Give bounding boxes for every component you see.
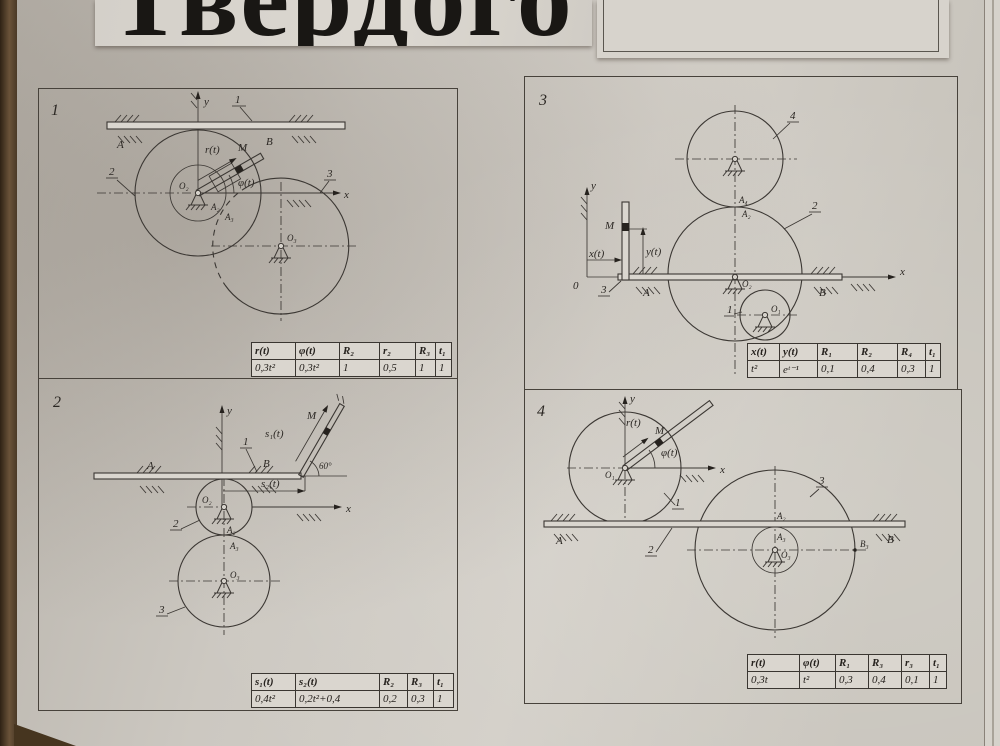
support-hatch-a-top xyxy=(633,267,657,274)
col-header: R₁ xyxy=(818,344,858,361)
body-3-label: 3 xyxy=(158,604,165,616)
a2-label: A₂ xyxy=(226,525,236,535)
a3-label: A₃ xyxy=(229,541,239,551)
photo-of-problem-sheet: Твердого 1 xyxy=(0,0,1000,746)
point-a-label: A xyxy=(642,287,650,299)
body-2-leader xyxy=(784,214,812,229)
panel-number: 3 xyxy=(538,92,547,109)
body-4-leader xyxy=(773,123,790,139)
support-hatch-b-bottom xyxy=(814,287,838,294)
support-hatch-b-top xyxy=(289,115,313,122)
a3-label: A₃ xyxy=(224,212,234,222)
problem-panel-4: 4 y x r(t) M φ(t) xyxy=(524,389,962,704)
mechanism-diagram-1: 1 y x A B xyxy=(39,89,454,375)
body-2-leader xyxy=(656,528,672,552)
xt-label: x(t) xyxy=(588,248,605,260)
col-value: 1 xyxy=(930,672,947,689)
o2-label: O₂ xyxy=(202,495,212,505)
panel-number: 2 xyxy=(53,394,61,411)
col-header: R₄ xyxy=(898,344,926,361)
x-axis-arrow xyxy=(333,191,341,196)
col-value: eᵗ⁻¹ xyxy=(780,361,818,378)
col-value: 0,1 xyxy=(902,672,930,689)
point-b3-dot xyxy=(853,548,857,552)
body-3-leader xyxy=(609,281,621,292)
col-header: r₂ xyxy=(380,343,416,360)
col-value: 0,2 xyxy=(380,691,408,708)
col-value: 0,5 xyxy=(380,360,416,377)
col-value: 1 xyxy=(436,360,452,377)
header-row: s₁(t) s₂(t) R₂ R₃ t₁ xyxy=(252,674,454,691)
x-axis-label: x xyxy=(343,189,349,201)
parameters-table-1: r(t) φ(t) R₂ r₂ R₃ t₁ 0,3t² 0,3t² 1 0,5 … xyxy=(251,342,452,377)
col-value: 0,4 xyxy=(869,672,902,689)
l-rod-post xyxy=(622,202,629,280)
col-header: φ(t) xyxy=(800,655,836,672)
rotating-rod xyxy=(191,144,266,200)
o1-label: O₁ xyxy=(771,304,781,314)
ground-hatch-x-axis xyxy=(287,200,311,207)
point-a-label: A xyxy=(146,460,154,472)
point-m-label: M xyxy=(604,220,615,232)
mechanism-diagram-3: 3 4 A₄ A₂ 2 y 0 xyxy=(525,77,954,386)
yt-label: y(t) xyxy=(645,246,662,258)
body-2-leader xyxy=(181,520,200,529)
col-header: s₂(t) xyxy=(296,674,380,691)
col-header: φ(t) xyxy=(296,343,340,360)
support-hatch-b-top xyxy=(811,267,835,274)
col-value: 1 xyxy=(416,360,436,377)
wall-hatch-y-axis xyxy=(581,197,587,220)
y-axis-arrow xyxy=(196,91,201,99)
col-value: 0,3t xyxy=(748,672,800,689)
body-1-leader xyxy=(246,449,257,472)
col-value: 1 xyxy=(340,360,380,377)
col-header: R₂ xyxy=(380,674,408,691)
panel-number: 1 xyxy=(51,102,59,119)
a2-label: A₂ xyxy=(210,202,220,212)
col-header: x(t) xyxy=(748,344,780,361)
col-value: 0,3 xyxy=(898,361,926,378)
support-hatch-b-bottom xyxy=(292,136,316,143)
col-header: t₁ xyxy=(434,674,454,691)
y-axis-arrow xyxy=(220,405,225,413)
support-hatch-a-bottom xyxy=(140,486,164,493)
phi-label: φ(t) xyxy=(661,447,678,459)
heading-text: Твердого xyxy=(109,0,574,46)
x-axis-arrow xyxy=(708,466,716,471)
col-header: R₁ xyxy=(836,655,869,672)
col-value: 1 xyxy=(434,691,454,708)
o2-label: O₂ xyxy=(742,279,752,289)
col-header: t₁ xyxy=(930,655,947,672)
body-2-label: 2 xyxy=(648,544,654,556)
body-3-leader xyxy=(810,489,819,497)
ground-hatch-x-axis xyxy=(680,475,704,482)
support-hatch-a-top xyxy=(115,115,139,122)
col-value: 0,3 xyxy=(408,691,434,708)
col-value: 0,3t² xyxy=(252,360,296,377)
body-4-label: 4 xyxy=(790,110,796,122)
a4-label: A₄ xyxy=(738,195,748,205)
col-header: R₃ xyxy=(869,655,902,672)
col-header: t₁ xyxy=(436,343,452,360)
point-b-label: B xyxy=(266,136,273,148)
value-row: t² eᵗ⁻¹ 0,1 0,4 0,3 1 xyxy=(748,361,941,378)
body-1-label: 1 xyxy=(727,304,733,316)
point-a-label: A xyxy=(555,535,563,547)
wall-hatch-y-axis xyxy=(216,427,222,450)
xt-arrow xyxy=(615,258,623,263)
support-hatch-b-top xyxy=(873,514,897,521)
y-axis-arrow xyxy=(623,396,628,404)
wall-hatch-y-axis xyxy=(619,402,625,425)
col-header: R₂ xyxy=(340,343,380,360)
support-hatch-a-top xyxy=(551,514,575,521)
point-m-slider xyxy=(622,223,629,231)
s2-label: s₂(t) xyxy=(261,478,280,490)
a2-label: A₂ xyxy=(741,209,751,219)
o3-label: O₃ xyxy=(230,570,240,580)
col-value: 0,4t² xyxy=(252,691,296,708)
origin-label: 0 xyxy=(573,280,579,292)
body-2-label: 2 xyxy=(173,518,179,530)
point-a-label: A xyxy=(116,139,124,151)
bar-ab xyxy=(544,521,905,527)
yt-arrow xyxy=(641,227,646,235)
y-axis-label: y xyxy=(629,393,635,405)
wall-hatch-y-axis xyxy=(191,93,197,108)
a3-label: A₃ xyxy=(776,532,786,542)
point-m-slider xyxy=(235,165,244,174)
col-header: r₃ xyxy=(902,655,930,672)
o2-label: O₂ xyxy=(179,181,189,191)
problem-panel-1: 1 y x A B xyxy=(38,88,458,379)
mechanism-diagram-2: 2 y A B 1 xyxy=(39,379,454,707)
ground-hatch-x-axis xyxy=(297,514,321,521)
o3-label: O₃ xyxy=(287,233,297,243)
point-m-slider xyxy=(654,438,663,447)
value-row: 0,3t t² 0,3 0,4 0,1 1 xyxy=(748,672,947,689)
body-1-leader xyxy=(664,493,675,505)
y-axis-arrow xyxy=(585,187,590,195)
panel-number: 4 xyxy=(537,403,545,420)
phi-label: φ(t) xyxy=(238,177,255,189)
paper-edge-right xyxy=(984,0,1000,746)
ground-hatch-x-axis xyxy=(851,284,875,291)
wood-table-edge-left xyxy=(0,0,17,746)
col-value: 0,4 xyxy=(858,361,898,378)
header-row: r(t) φ(t) R₂ r₂ R₃ t₁ xyxy=(252,343,452,360)
parameters-table-2: s₁(t) s₂(t) R₂ R₃ t₁ 0,4t² 0,2t²+0,4 0,2… xyxy=(251,673,454,708)
col-header: y(t) xyxy=(780,344,818,361)
col-value: 0,3 xyxy=(836,672,869,689)
paper-edge-line xyxy=(992,0,994,746)
y-axis-label: y xyxy=(203,96,209,108)
point-m-label: M xyxy=(306,410,317,422)
value-row: 0,3t² 0,3t² 1 0,5 1 1 xyxy=(252,360,452,377)
body-2-label: 2 xyxy=(109,166,115,178)
x-axis-label: x xyxy=(899,266,905,278)
col-header: t₁ xyxy=(926,344,941,361)
header-row: r(t) φ(t) R₁ R₃ r₃ t₁ xyxy=(748,655,947,672)
col-value: 1 xyxy=(926,361,941,378)
body-3-leader xyxy=(320,181,329,193)
body-3-leader xyxy=(167,607,185,614)
o3-label: O₃ xyxy=(781,550,791,560)
angle-60-label: 60° xyxy=(319,461,332,471)
y-axis-label: y xyxy=(590,180,596,192)
body-1-label: 1 xyxy=(675,497,681,509)
body-1-label: 1 xyxy=(243,436,249,448)
parameters-table-4: r(t) φ(t) R₁ R₃ r₃ t₁ 0,3t t² 0,3 0,4 0,… xyxy=(747,654,947,689)
x-axis-arrow xyxy=(888,275,896,280)
o1-label: O₁ xyxy=(605,470,615,480)
value-row: 0,4t² 0,2t²+0,4 0,2 0,3 1 xyxy=(252,691,454,708)
col-header: R₃ xyxy=(408,674,434,691)
heading-strip: Твердого xyxy=(95,0,592,46)
body-3-label: 3 xyxy=(600,284,607,296)
empty-box-strip xyxy=(597,0,949,58)
col-header: R₃ xyxy=(416,343,436,360)
col-value: 0,1 xyxy=(818,361,858,378)
col-value: 0,3t² xyxy=(296,360,340,377)
x-axis-label: x xyxy=(719,464,725,476)
x-axis-arrow xyxy=(334,505,342,510)
x-axis-label: x xyxy=(345,503,351,515)
point-m-label: M xyxy=(237,142,248,154)
s2-arrow xyxy=(298,489,306,494)
header-row: x(t) y(t) R₁ R₂ R₄ t₁ xyxy=(748,344,941,361)
bar-ab xyxy=(107,122,345,129)
body-1-label: 1 xyxy=(235,94,241,106)
point-m-label: M xyxy=(654,425,665,437)
problem-panel-2: 2 y A B 1 xyxy=(38,378,458,711)
empty-box-outline xyxy=(603,0,939,52)
col-value: t² xyxy=(748,361,780,378)
col-header: r(t) xyxy=(748,655,800,672)
point-b-label: B xyxy=(887,534,894,546)
rt-label: r(t) xyxy=(205,144,220,156)
point-b-label: B xyxy=(263,458,270,470)
col-header: R₂ xyxy=(858,344,898,361)
body-3-label: 3 xyxy=(818,475,825,487)
col-header: s₁(t) xyxy=(252,674,296,691)
y-axis-label: y xyxy=(226,405,232,417)
col-header: r(t) xyxy=(252,343,296,360)
bar-ab xyxy=(618,274,842,280)
pivot-o2 xyxy=(212,504,234,524)
a2-label: A₂ xyxy=(776,511,786,521)
b3-label: B₃ xyxy=(860,539,869,549)
s1-label: s₁(t) xyxy=(265,428,284,440)
body-1-leader xyxy=(240,107,252,121)
body-2-leader xyxy=(117,180,135,196)
problem-panel-3: 3 4 A₄ A₂ 2 y 0 xyxy=(524,76,958,390)
rt-label: r(t) xyxy=(626,417,641,429)
point-b-label: B xyxy=(819,287,826,299)
body-2-label: 2 xyxy=(812,200,818,212)
col-value: t² xyxy=(800,672,836,689)
col-value: 0,2t²+0,4 xyxy=(296,691,380,708)
body-3-label: 3 xyxy=(326,168,333,180)
parameters-table-3: x(t) y(t) R₁ R₂ R₄ t₁ t² eᵗ⁻¹ 0,1 0,4 0,… xyxy=(747,343,941,378)
point-m-slider xyxy=(323,427,331,436)
